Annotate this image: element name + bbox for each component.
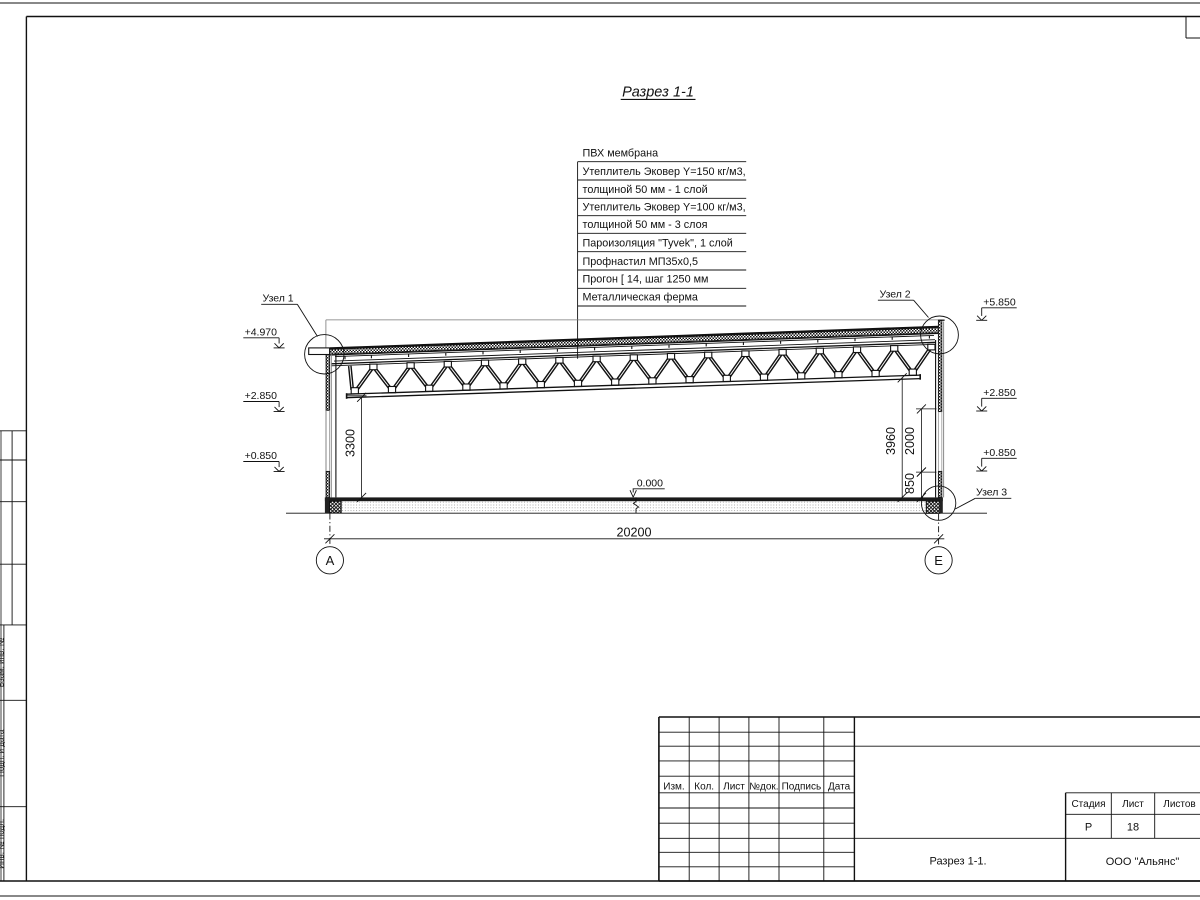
svg-text:Разрез 1-1.: Разрез 1-1. bbox=[929, 856, 986, 868]
svg-text:А: А bbox=[326, 553, 335, 568]
svg-text:Разрез 1-1: Разрез 1-1 bbox=[622, 84, 694, 100]
svg-text:Подп. и дата: Подп. и дата bbox=[0, 729, 5, 777]
svg-text:18: 18 bbox=[1127, 822, 1139, 834]
svg-text:Лист: Лист bbox=[723, 781, 745, 792]
svg-text:Утеплитель Эковер Y=100 кг/м3,: Утеплитель Эковер Y=100 кг/м3, bbox=[583, 202, 746, 214]
svg-text:Кол.: Кол. bbox=[694, 781, 714, 792]
svg-text:Узел 2: Узел 2 bbox=[880, 289, 911, 301]
svg-text:Листов: Листов bbox=[1163, 799, 1196, 810]
svg-text:Пароизоляция "Tyvek", 1 слой: Пароизоляция "Tyvek", 1 слой bbox=[583, 237, 733, 249]
svg-text:Узел 3: Узел 3 bbox=[976, 486, 1007, 498]
svg-text:+0.850: +0.850 bbox=[983, 447, 1016, 459]
svg-text:850: 850 bbox=[903, 473, 917, 494]
svg-text:3960: 3960 bbox=[884, 427, 898, 455]
svg-text:Дата: Дата bbox=[828, 781, 851, 792]
svg-text:+2.850: +2.850 bbox=[983, 387, 1016, 399]
svg-text:Е: Е bbox=[934, 553, 943, 568]
svg-text:Подпись: Подпись bbox=[782, 781, 822, 792]
svg-text:Взам. инв. №: Взам. инв. № bbox=[0, 637, 5, 687]
svg-text:толщиной 50 мм - 3 слоя: толщиной 50 мм - 3 слоя bbox=[583, 219, 708, 231]
svg-text:20200: 20200 bbox=[616, 525, 651, 539]
svg-text:+0.850: +0.850 bbox=[245, 450, 278, 462]
svg-text:Узел 1: Узел 1 bbox=[263, 293, 294, 305]
svg-text:Изм.: Изм. bbox=[663, 781, 684, 792]
svg-text:+4.970: +4.970 bbox=[245, 327, 278, 339]
svg-text:+2.850: +2.850 bbox=[245, 390, 278, 402]
svg-text:Металлическая ферма: Металлическая ферма bbox=[583, 292, 698, 304]
svg-text:ПВХ мембрана: ПВХ мембрана bbox=[583, 148, 659, 160]
svg-text:+5.850: +5.850 bbox=[983, 297, 1016, 309]
svg-text:Прогон [ 14, шаг 1250 мм: Прогон [ 14, шаг 1250 мм bbox=[583, 274, 709, 286]
svg-text:0.000: 0.000 bbox=[637, 477, 663, 489]
svg-text:ООО "Альянс": ООО "Альянс" bbox=[1106, 856, 1180, 868]
svg-text:Р: Р bbox=[1085, 822, 1092, 834]
svg-text:№док.: №док. bbox=[749, 781, 778, 792]
svg-text:толщиной 50 мм - 1 слой: толщиной 50 мм - 1 слой bbox=[583, 184, 708, 196]
svg-text:Профнастил МП35х0,5: Профнастил МП35х0,5 bbox=[583, 256, 698, 268]
svg-text:3300: 3300 bbox=[344, 429, 358, 457]
svg-text:2000: 2000 bbox=[903, 427, 917, 455]
svg-text:Утеплитель Эковер Y=150 кг/м3,: Утеплитель Эковер Y=150 кг/м3, bbox=[583, 166, 746, 178]
svg-text:Инв. № подл.: Инв. № подл. bbox=[0, 819, 5, 869]
svg-text:Лист: Лист bbox=[1122, 799, 1144, 810]
svg-text:Стадия: Стадия bbox=[1071, 799, 1105, 810]
